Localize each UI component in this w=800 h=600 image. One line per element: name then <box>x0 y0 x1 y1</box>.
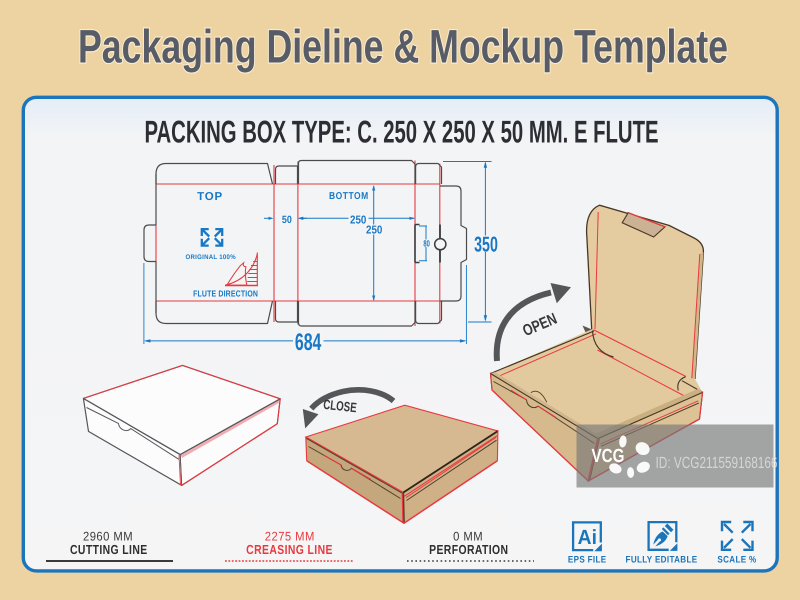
svg-text:TOP: TOP <box>197 191 223 203</box>
svg-text:50: 50 <box>282 214 292 226</box>
svg-text:Ai: Ai <box>578 526 597 549</box>
svg-text:250: 250 <box>366 225 382 237</box>
svg-text:VCG: VCG <box>592 446 625 467</box>
svg-text:350: 350 <box>474 233 498 257</box>
svg-text:ORIGINAL 100%: ORIGINAL 100% <box>186 254 236 261</box>
svg-text:PACKING BOX TYPE: C. 250 X 250: PACKING BOX TYPE: C. 250 X 250 X 50 MM. … <box>144 114 658 150</box>
svg-text:CUTTING LINE: CUTTING LINE <box>70 542 148 557</box>
svg-text:CREASING LINE: CREASING LINE <box>246 542 333 557</box>
svg-text:BOTTOM: BOTTOM <box>329 191 369 202</box>
svg-text:Packaging Dieline & Mockup Tem: Packaging Dieline & Mockup Template <box>78 20 728 73</box>
svg-text:250: 250 <box>350 214 366 226</box>
svg-text:FULLY EDITABLE: FULLY EDITABLE <box>626 554 698 565</box>
svg-text:80: 80 <box>423 238 430 248</box>
svg-text:EPS FILE: EPS FILE <box>568 554 607 565</box>
svg-text:684: 684 <box>295 329 322 356</box>
svg-text:PERFORATION: PERFORATION <box>429 542 508 557</box>
svg-text:FLUTE DIRECTION: FLUTE DIRECTION <box>193 288 258 298</box>
svg-text:SCALE %: SCALE % <box>717 554 756 565</box>
svg-text:ID: VCG211559168166: ID: VCG211559168166 <box>656 454 778 472</box>
